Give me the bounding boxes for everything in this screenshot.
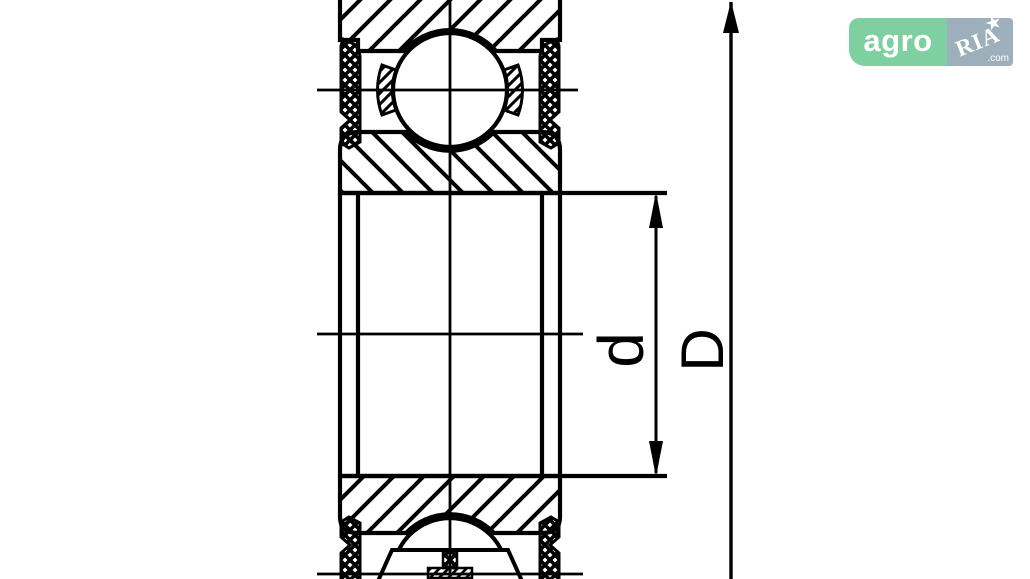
logo-agro-tile: agro: [849, 18, 947, 66]
dimension-label-d: d: [585, 332, 657, 368]
logo-agro-text: agro: [863, 25, 932, 59]
logo-ria-tile: ★ RIA .com: [947, 18, 1013, 66]
bearing-drawing-page: d D agro ★ RIA .com: [0, 0, 1030, 579]
seal-top-right: [540, 39, 559, 148]
seal-bottom-right: [540, 517, 559, 579]
dimension-d-arrow-down: [649, 441, 663, 477]
logo: agro ★ RIA .com: [849, 18, 1013, 66]
dimension-d-arrow-up: [649, 192, 663, 228]
dimension-D-arrow-up: [723, 1, 739, 33]
dimension-D: [723, 1, 739, 579]
seal-bottom-left: [341, 517, 360, 579]
seal-top-left: [341, 39, 360, 148]
bearing-cross-section-drawing: d D: [0, 0, 1030, 579]
logo-com-text: .com: [987, 54, 1009, 64]
dimension-label-D: D: [669, 328, 736, 371]
